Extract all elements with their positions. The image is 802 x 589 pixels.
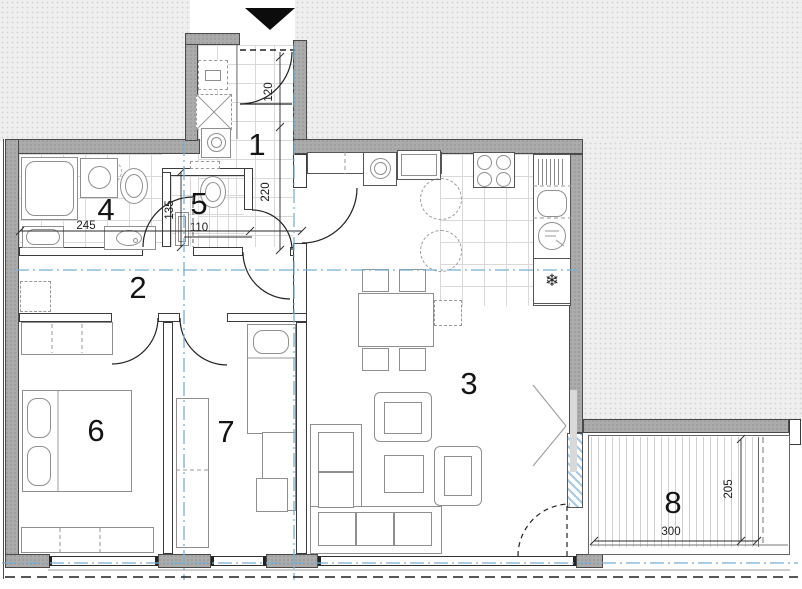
- exterior-area-right: [583, 141, 802, 422]
- washing-machine-drum-inner: [211, 137, 222, 148]
- dim-wc-width: 110: [190, 222, 208, 234]
- burner: [496, 155, 511, 170]
- dining-chair-optional: [434, 300, 462, 326]
- washer-bathroom-drum: [88, 166, 111, 189]
- room-label-8: 8: [664, 485, 681, 521]
- partition-wall: [158, 313, 180, 322]
- room-label-6: 6: [87, 413, 104, 449]
- dishwasher: [538, 222, 566, 250]
- exterior-wall: [576, 554, 603, 568]
- dining-chair: [362, 269, 389, 292]
- partition-wall: [19, 313, 112, 322]
- sofa-cushion: [318, 512, 356, 546]
- dining-chair: [399, 269, 426, 292]
- bathtub-inner: [25, 161, 74, 216]
- bed-pillow: [27, 446, 51, 486]
- window-bedroom6: [49, 556, 158, 566]
- single-bed-pillow: [253, 330, 289, 354]
- room-label-7: 7: [217, 414, 234, 450]
- exterior-wall: [583, 419, 789, 433]
- exterior-wall: [5, 139, 200, 154]
- pendant-circle: [420, 230, 462, 272]
- hall-shelf-inner: [205, 70, 221, 81]
- burner: [477, 172, 492, 187]
- exterior-wall: [158, 554, 211, 568]
- corridor-closet: [20, 281, 51, 312]
- room-label-2: 2: [129, 270, 146, 306]
- sofa-cushion: [318, 432, 354, 472]
- fridge-snowflake-icon: ❄: [545, 271, 559, 291]
- appliance-space: [196, 94, 232, 130]
- exterior-wall: [5, 554, 50, 568]
- kitchen-sink-round-inner: [374, 162, 387, 175]
- partition-wall: [296, 322, 307, 554]
- dim-entry-door-width: 120: [263, 82, 275, 101]
- room-label-4: 4: [97, 192, 114, 228]
- plot-boundary-line: [3, 139, 4, 579]
- floor-plan: ❄ 1 2 3 4 5 6 7 8 120 220 245 135 110 30…: [0, 0, 802, 589]
- wc-sink-inner: [178, 216, 186, 242]
- sofa-cushion: [394, 512, 432, 546]
- armchair-cushion: [384, 402, 422, 434]
- bedroom6-cabinet: [21, 527, 154, 553]
- dim-terrace-width: 300: [661, 526, 680, 538]
- dish-drainer: [538, 159, 566, 185]
- dim-hall-depth: 220: [260, 182, 272, 201]
- armchair-cushion: [444, 456, 472, 496]
- window-bedroom7: [211, 556, 266, 566]
- wc-vent: [190, 161, 220, 169]
- partition-wall: [293, 243, 307, 322]
- entrance-arrow-icon: [245, 8, 295, 30]
- kitchen-cabinet-box-inner: [401, 154, 437, 176]
- partition-wall: [293, 154, 307, 188]
- room-label-5: 5: [190, 186, 207, 222]
- dim-wc-depth: 135: [164, 200, 176, 219]
- window-living: [318, 556, 576, 566]
- burner: [477, 155, 492, 170]
- exterior-area-top-right: [295, 0, 802, 141]
- bed-pillow: [27, 398, 51, 438]
- exterior-wall: [5, 139, 19, 568]
- wardrobe-bedroom6: [21, 322, 113, 355]
- toilet-bathroom-seat: [125, 174, 143, 198]
- kitchen-sink: [537, 190, 567, 217]
- vanity-drain: [133, 238, 138, 243]
- dim-terrace-depth: 205: [723, 479, 735, 498]
- window-living-east: [570, 390, 577, 472]
- coffee-table: [384, 455, 424, 493]
- dining-chair: [399, 348, 426, 371]
- exterior-wall: [266, 554, 318, 568]
- exterior-area-top-left: [0, 0, 190, 141]
- exterior-wall: [293, 40, 307, 141]
- dining-table: [358, 293, 434, 347]
- vanity-left-basin: [26, 229, 60, 245]
- wall-end-cap: [789, 419, 801, 445]
- vanity-right-basin: [116, 230, 142, 246]
- sofa-cushion: [318, 472, 354, 508]
- pendant-circle: [420, 178, 462, 220]
- sofa-cushion: [356, 512, 394, 546]
- partition-wall: [163, 322, 173, 554]
- room-label-3: 3: [460, 366, 477, 402]
- partition-wall: [227, 313, 307, 322]
- desk-chair: [256, 478, 288, 512]
- burner: [496, 172, 511, 187]
- wardrobe-bedroom7: [176, 398, 209, 548]
- partition-wall: [162, 168, 252, 176]
- exterior-wall: [185, 33, 240, 45]
- partition-wall: [193, 247, 243, 256]
- partition-wall: [244, 168, 253, 210]
- room-label-1: 1: [248, 127, 265, 163]
- dining-chair: [362, 348, 389, 371]
- dim-bathroom-width: 245: [76, 220, 95, 232]
